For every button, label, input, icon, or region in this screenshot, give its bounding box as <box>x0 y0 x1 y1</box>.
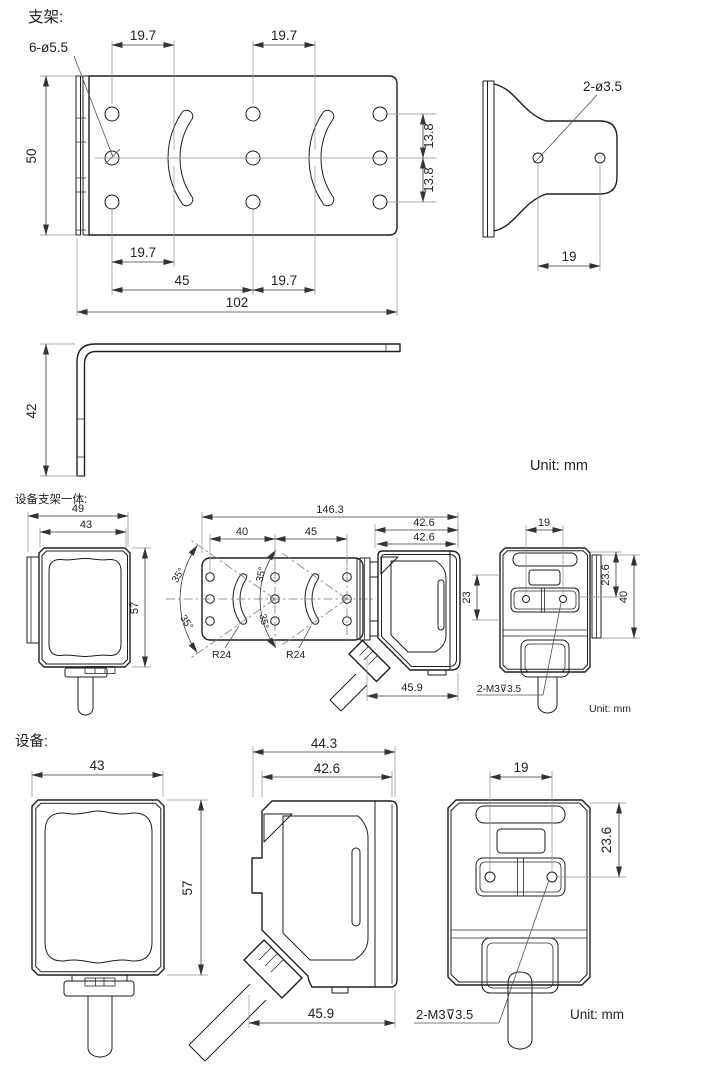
dim-integrated-angle-bottom-left: 35° <box>177 613 194 632</box>
dim-device-cable-clearance: 45.9 <box>308 1006 334 1021</box>
dim-integrated-total-length: 146.3 <box>316 504 344 516</box>
unit-label-integrated: Unit: mm <box>589 703 631 715</box>
dim-bracket-height: 50 <box>24 148 39 163</box>
bracket-l-profile-view: 42 <box>24 344 400 476</box>
callout-bracket-side-holes: 2-ø3.5 <box>583 79 622 94</box>
device-front-view: 43 57 <box>32 758 208 1057</box>
dim-bracket-row-upper: 13.8 <box>421 123 436 148</box>
dim-bracket-pitch-bottom-right: 19.7 <box>271 273 297 288</box>
section-title-device: 设备: <box>15 733 48 750</box>
dim-integrated-rear-offset: 23.6 <box>600 564 612 585</box>
dim-integrated-slot-radius-right: R24 <box>286 649 305 661</box>
dim-device-height: 57 <box>180 880 195 895</box>
callout-bracket-holes: 6-ø5.5 <box>29 40 68 55</box>
dim-integrated-slot-radius-left: R24 <box>212 649 231 661</box>
dim-bracket-side-pitch: 19 <box>561 249 576 264</box>
dim-bracket-span-mid: 45 <box>174 273 189 288</box>
dim-integrated-rear-pitch: 19 <box>538 517 550 529</box>
dim-integrated-hole-pitch-left: 40 <box>236 526 248 538</box>
dim-integrated-depth-outer: 42.6 <box>413 517 434 529</box>
callout-device-thread: 2-M3⊽3.5 <box>416 1007 473 1022</box>
integrated-front-view: 49 43 57 <box>27 503 151 715</box>
dim-device-depth-total: 44.3 <box>311 736 337 751</box>
dim-integrated-lens-height: 23 <box>461 591 473 603</box>
dim-bracket-pitch-top-right: 19.7 <box>271 28 297 43</box>
dim-integrated-hole-pitch-right: 45 <box>305 526 317 538</box>
dim-bracket-total-width: 102 <box>226 295 249 310</box>
dim-integrated-cable-clearance: 45.9 <box>401 682 422 694</box>
integrated-side-view: 42.6 42.6 45.9 <box>330 517 460 711</box>
dim-integrated-depth-body: 42.6 <box>413 532 434 544</box>
bracket-top-view: 19.7 19.7 6-ø5.5 50 13.8 13.8 19.7 45 19… <box>24 28 437 316</box>
dim-bracket-pitch-top-left: 19.7 <box>130 28 156 43</box>
integrated-rear-view: 19 23.6 40 23 2-M3⊽3.5 Unit: mm <box>461 517 640 715</box>
drawing-sheet: 支架: 19.7 19.7 6-ø5.5 50 <box>0 0 705 1080</box>
dim-integrated-height-body: 57 <box>129 602 141 614</box>
section-title-bracket: 支架: <box>28 8 63 26</box>
dim-integrated-angle-bottom-mid: 35° <box>256 613 270 630</box>
dim-integrated-width-body: 43 <box>80 519 92 531</box>
bracket-side-view: 2-ø3.5 19 <box>483 79 622 271</box>
dim-device-rear-offset: 23.6 <box>599 827 614 853</box>
dim-integrated-angle-top-mid: 35° <box>255 566 269 583</box>
dim-bracket-row-lower: 13.8 <box>421 167 436 192</box>
dim-bracket-pitch-bottom-left: 19.7 <box>130 245 156 260</box>
dim-integrated-width-outer: 49 <box>72 503 84 515</box>
dim-integrated-plate-height: 40 <box>618 591 630 603</box>
callout-integrated-thread: 2-M3⊽3.5 <box>477 684 521 695</box>
dim-device-width: 43 <box>89 758 104 773</box>
device-rear-view: 19 23.6 2-M3⊽3.5 Unit: mm <box>414 760 626 1049</box>
unit-label-bracket: Unit: mm <box>530 458 588 474</box>
dim-device-rear-pitch: 19 <box>513 760 528 775</box>
dim-device-depth-body: 42.6 <box>314 761 340 776</box>
technical-drawing: 支架: 19.7 19.7 6-ø5.5 50 <box>0 0 705 1080</box>
dim-bracket-leg-height: 42 <box>24 403 39 418</box>
device-side-view: 44.3 42.6 45.9 <box>189 736 397 1061</box>
unit-label-device: Unit: mm <box>570 1007 624 1022</box>
